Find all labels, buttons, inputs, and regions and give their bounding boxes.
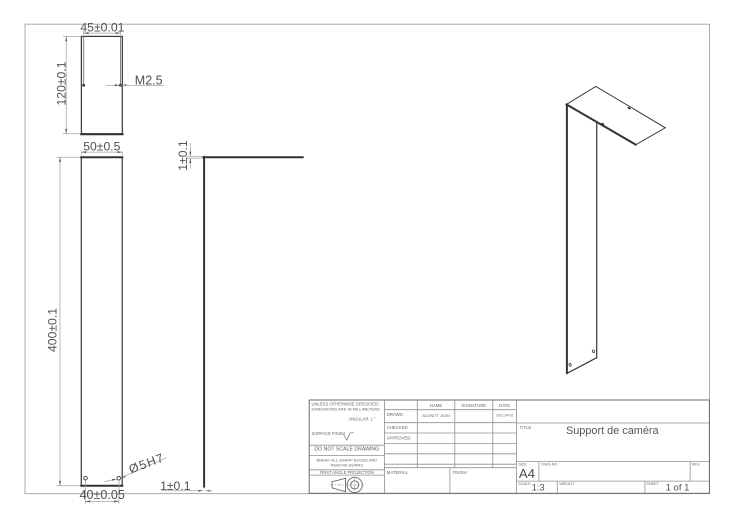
svg-text:MATERIAL: MATERIAL bbox=[387, 470, 409, 475]
svg-text:45±0.01: 45±0.01 bbox=[80, 20, 124, 34]
svg-text:50±0.5: 50±0.5 bbox=[83, 139, 120, 153]
svg-text:2021-04-02: 2021-04-02 bbox=[496, 414, 513, 418]
svg-text:SHEET: SHEET bbox=[646, 482, 659, 486]
svg-text:NAME: NAME bbox=[430, 403, 443, 408]
svg-text:REV.: REV. bbox=[692, 463, 701, 467]
svg-text:1:3: 1:3 bbox=[532, 483, 545, 493]
svg-text:Support de caméra: Support de caméra bbox=[566, 425, 660, 437]
svg-text:400±0.1: 400±0.1 bbox=[46, 308, 60, 352]
svg-text:ADONITT JEAN: ADONITT JEAN bbox=[422, 414, 450, 418]
svg-text:ANGULAR: ± °: ANGULAR: ± ° bbox=[349, 417, 376, 422]
svg-text:SCALE: SCALE bbox=[518, 482, 531, 486]
svg-text:FINISH: FINISH bbox=[453, 470, 467, 475]
svg-text:A4: A4 bbox=[519, 466, 535, 481]
svg-text:M2.5: M2.5 bbox=[135, 73, 163, 87]
svg-text:APPROVED: APPROVED bbox=[387, 436, 411, 441]
svg-text:CHECKED: CHECKED bbox=[387, 425, 408, 430]
svg-text:1±0.1: 1±0.1 bbox=[160, 479, 191, 493]
svg-text:REMOVE BURRS: REMOVE BURRS bbox=[331, 463, 364, 468]
svg-text:SURFACE FINISH: SURFACE FINISH bbox=[312, 431, 346, 436]
svg-text:WEIGHT: WEIGHT bbox=[559, 482, 575, 486]
svg-text:FIRST ANGLE PROJECTION: FIRST ANGLE PROJECTION bbox=[320, 470, 374, 475]
svg-text:40±0.05: 40±0.05 bbox=[79, 488, 124, 502]
svg-text:1 of 1: 1 of 1 bbox=[666, 483, 690, 494]
svg-text:TITLE: TITLE bbox=[520, 425, 532, 430]
svg-text:SIGNATURE: SIGNATURE bbox=[461, 403, 486, 408]
svg-text:DRAWN: DRAWN bbox=[387, 412, 403, 417]
svg-text:DIMENSIONS ARE IN MILLIMETERS: DIMENSIONS ARE IN MILLIMETERS bbox=[312, 406, 380, 411]
svg-text:120±0.1: 120±0.1 bbox=[55, 61, 69, 105]
svg-text:DWG NO.: DWG NO. bbox=[541, 463, 558, 467]
svg-text:DO NOT SCALE DRAWING: DO NOT SCALE DRAWING bbox=[314, 446, 379, 452]
svg-text:DATE: DATE bbox=[499, 403, 510, 408]
svg-text:1±0.1: 1±0.1 bbox=[176, 140, 190, 171]
